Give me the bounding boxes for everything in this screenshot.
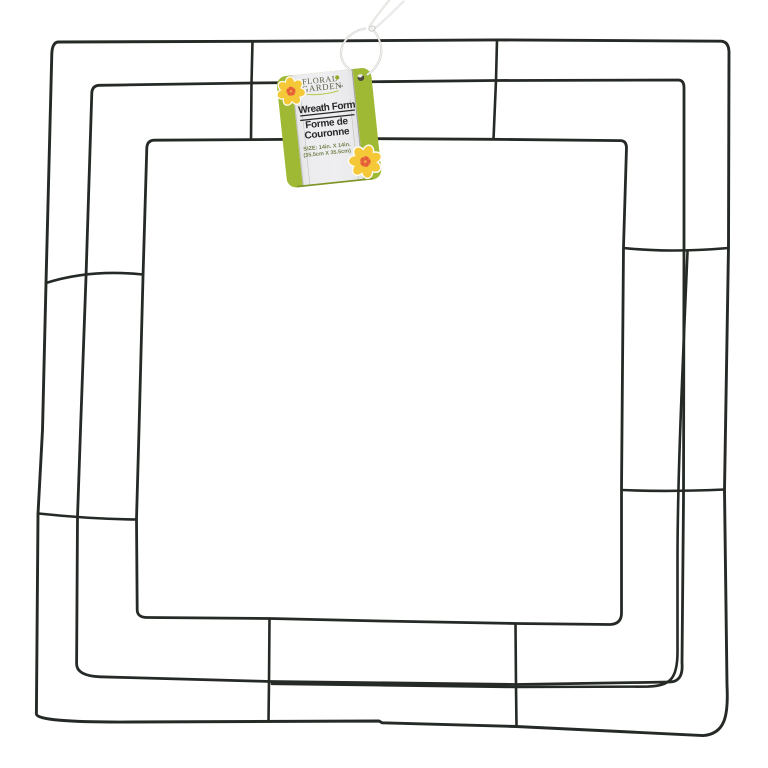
svg-text:TM: TM xyxy=(339,84,344,88)
